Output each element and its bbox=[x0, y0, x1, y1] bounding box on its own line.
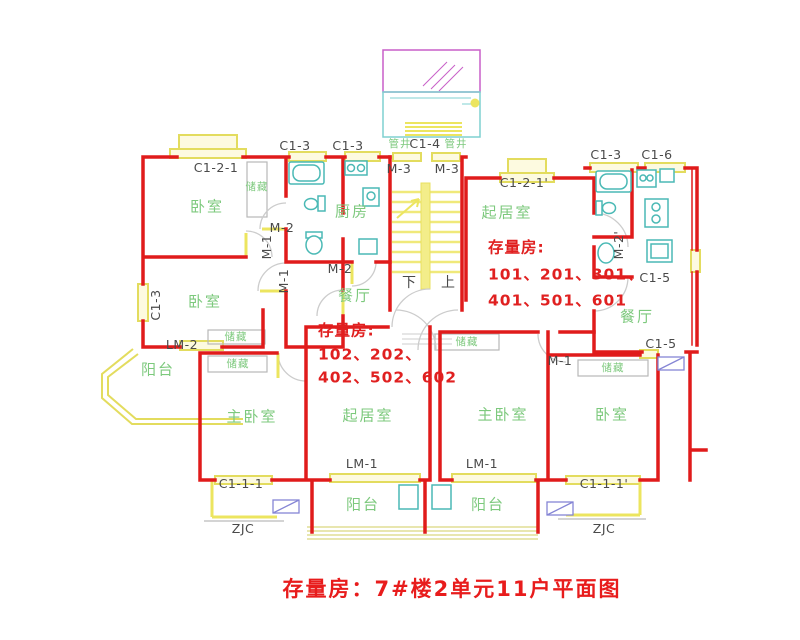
tag-c1-2-1: C1-2-1 bbox=[194, 162, 239, 175]
tag-c1-3-top-1: C1-3 bbox=[279, 140, 310, 153]
entrance-canopy bbox=[383, 50, 480, 137]
stair-down-label: 下 bbox=[402, 276, 416, 290]
room-label-master-right: 主卧室 bbox=[477, 408, 528, 423]
washer-right bbox=[432, 485, 451, 509]
note-unit2-line3: 402、502、602 bbox=[318, 370, 457, 386]
stair-up-label: 上 bbox=[441, 276, 455, 290]
tag-m3-left: M-3 bbox=[387, 163, 412, 176]
tag-c1-5-upper: C1-5 bbox=[639, 272, 670, 285]
room-label-master-left: 主卧室 bbox=[226, 410, 277, 425]
tag-m2-kitchen: M-2 bbox=[328, 263, 353, 276]
storage-label-5: 储藏 bbox=[602, 363, 625, 374]
room-label-bedroom-top-left: 卧室 bbox=[190, 200, 224, 215]
floor-plan-page: 卧室 卧室 厨房 起居室 餐厅 餐厅 阳台 主卧室 起居室 主卧室 卧室 阳台 … bbox=[0, 0, 800, 640]
storage-label-3: 储藏 bbox=[227, 359, 250, 370]
room-label-dining-right: 餐厅 bbox=[620, 310, 654, 325]
tag-c1-3-top-2: C1-3 bbox=[332, 140, 363, 153]
tag-c1-1-1-prime: C1-1-1' bbox=[580, 478, 629, 491]
tag-m1-vertical-1: M-1 bbox=[261, 235, 274, 260]
staircase bbox=[392, 183, 460, 344]
washer-left bbox=[399, 485, 418, 509]
room-label-bedroom-right: 卧室 bbox=[595, 408, 629, 423]
storage-label-1: 储藏 bbox=[246, 182, 269, 193]
tag-m2-prime: M-2' bbox=[613, 231, 626, 260]
note-unit1-line3: 401、501、601 bbox=[488, 293, 627, 309]
note-unit2-line2: 102、202、 bbox=[318, 347, 422, 363]
note-unit1-line2: 101、201、301、 bbox=[488, 267, 644, 283]
tag-m1-bottom: M-1 bbox=[548, 355, 573, 368]
tag-c1-2-1-prime: C1-2-1' bbox=[500, 177, 549, 190]
drawing-title: 存量房：7#楼2单元11户平面图 bbox=[282, 573, 621, 603]
tag-zjc-right: ZJC bbox=[593, 523, 615, 536]
tag-c1-6: C1-6 bbox=[641, 149, 672, 162]
tag-c1-5-lower: C1-5 bbox=[645, 338, 676, 351]
room-label-balcony-bottom-left: 阳台 bbox=[346, 498, 380, 513]
canopy-marker-dot bbox=[471, 99, 480, 108]
room-label-dining-left: 餐厅 bbox=[338, 289, 372, 304]
shaft-label-left: 管井 bbox=[389, 139, 412, 150]
tag-c1-3-left-vertical: C1-3 bbox=[150, 289, 163, 320]
tag-c1-4: C1-4 bbox=[409, 138, 440, 151]
tag-m3-right: M-3 bbox=[435, 163, 460, 176]
tag-m1-vertical-2: M-1 bbox=[278, 269, 291, 294]
room-label-living-bottom: 起居室 bbox=[342, 409, 393, 424]
tag-lm2: LM-2 bbox=[166, 339, 198, 352]
storage-label-2: 储藏 bbox=[225, 332, 248, 343]
tag-c1-3-top-right: C1-3 bbox=[590, 149, 621, 162]
counter-box-right bbox=[660, 169, 674, 182]
toilet-right bbox=[596, 201, 602, 215]
balcony-railing bbox=[307, 527, 538, 539]
tag-lm1-left: LM-1 bbox=[346, 458, 378, 471]
note-unit2-heading: 存量房: bbox=[318, 323, 375, 339]
room-label-bedroom-left: 卧室 bbox=[188, 295, 222, 310]
tag-lm1-right: LM-1 bbox=[466, 458, 498, 471]
room-label-living-top: 起居室 bbox=[481, 206, 532, 221]
storage-label-4: 储藏 bbox=[456, 337, 479, 348]
room-label-balcony-bottom-right: 阳台 bbox=[471, 498, 505, 513]
shaft-label-right: 管井 bbox=[445, 139, 468, 150]
room-label-balcony-left: 阳台 bbox=[141, 363, 175, 378]
cabinet-left bbox=[359, 239, 377, 254]
floor-plan-drawing bbox=[0, 0, 800, 640]
note-unit1-heading: 存量房: bbox=[488, 240, 545, 256]
tag-zjc-left: ZJC bbox=[232, 523, 254, 536]
toilet-left bbox=[318, 196, 325, 211]
tag-m2-bath-left: M-2 bbox=[270, 222, 295, 235]
tag-c1-1-1: C1-1-1 bbox=[219, 478, 264, 491]
room-label-kitchen: 厨房 bbox=[335, 205, 369, 220]
entry-steps bbox=[402, 334, 452, 344]
